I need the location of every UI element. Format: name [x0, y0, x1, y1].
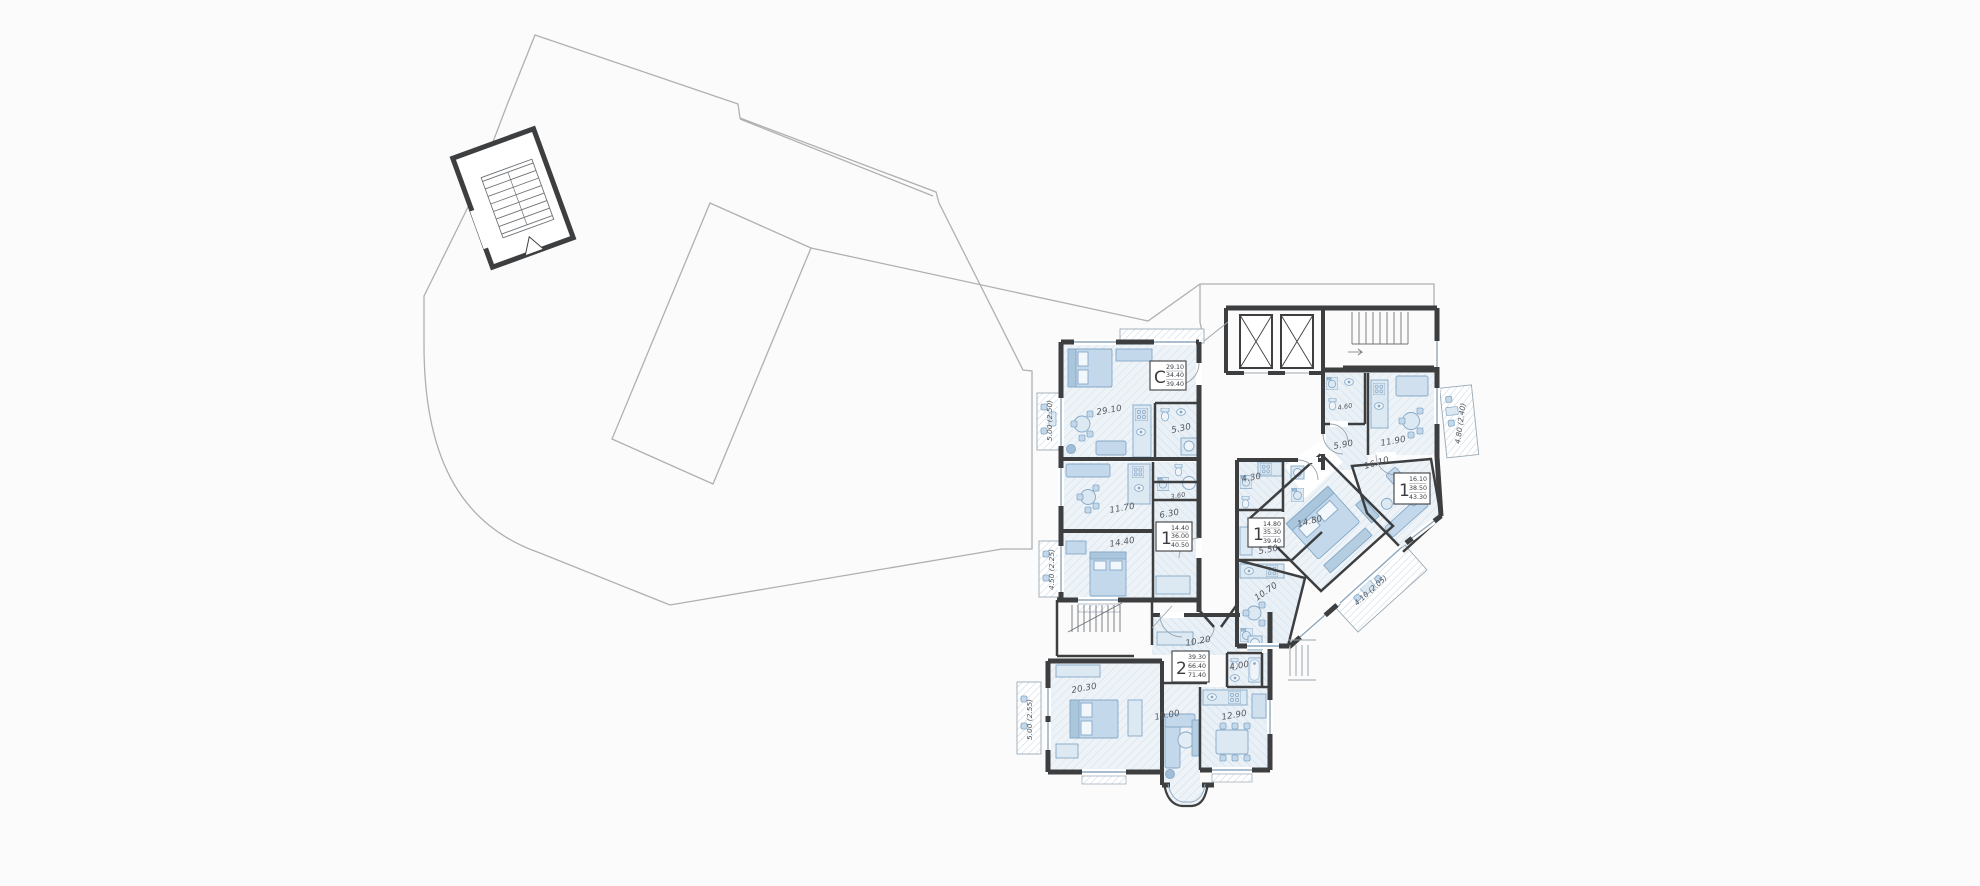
total-area: 43.30: [1409, 494, 1427, 501]
plant-icon: [1067, 445, 1076, 454]
living-area: 14.80: [1263, 521, 1281, 528]
window-sill: [1082, 776, 1126, 784]
living-area: 14.40: [1171, 525, 1189, 532]
floor-plan-page: { "plan": { "apartments": [ {"kind":"stu…: [0, 0, 1980, 886]
site-inner-edge: [740, 119, 933, 196]
wardrobe-icon: [1156, 576, 1190, 594]
wardrobe-icon: [1116, 349, 1152, 361]
apartment-type-letter: 2: [1176, 659, 1187, 679]
bed-double-icon: [1068, 349, 1112, 387]
plant-icon: [1166, 770, 1175, 779]
wardrobe-icon: [1056, 665, 1100, 677]
bed-double-icon: [1070, 700, 1118, 738]
kitchen-counter-icon: [1133, 405, 1151, 457]
floor-plan-svg: С 29.10 34.40 39.40 1 14.40 36.00 40.50 …: [0, 0, 1980, 886]
desk-icon: [1056, 744, 1078, 758]
living-area: 16.10: [1409, 476, 1427, 483]
core-stairs-icon: [1348, 312, 1408, 355]
dining-table-icon: [1216, 730, 1248, 754]
detached-stairwell: [451, 129, 573, 268]
dresser-icon: [1128, 700, 1142, 736]
spec-card-1room-c: 1 16.10 38.50 43.30: [1394, 473, 1430, 504]
balcony-label: 4.50 (2.25): [1047, 549, 1056, 590]
area: 36.00: [1171, 533, 1189, 540]
elevator-core: [1240, 315, 1313, 373]
kitchenette-row-icon: [1258, 462, 1282, 476]
spec-card-2room: 2 39.30 66.40 71.40: [1172, 651, 1209, 682]
window-sill: [1212, 774, 1252, 782]
total-area: 40.50: [1171, 542, 1189, 549]
spec-card-1room-b: 1 14.80 35.30 39.40: [1248, 518, 1284, 547]
balcony-label: 5.00 (2.55): [1025, 699, 1034, 740]
spec-card-studio: С 29.10 34.40 39.40: [1150, 361, 1186, 390]
site-boundary: [424, 35, 1032, 605]
apartment-type-letter: С: [1154, 368, 1166, 388]
tv-stand-icon: [1192, 720, 1199, 756]
spec-card-1room-a: 1 14.40 36.00 40.50: [1156, 522, 1192, 551]
kitchen-counter-icon: [1128, 464, 1150, 504]
living-area: 39.30: [1188, 654, 1206, 661]
bed-double-icon: [1090, 552, 1126, 596]
area: 66.40: [1188, 663, 1206, 670]
dresser-icon: [1066, 541, 1086, 554]
site-inner-rect: [612, 203, 811, 484]
stairwell-walls: [453, 129, 573, 267]
area: 34.40: [1166, 372, 1184, 379]
cabinet-icon: [1396, 376, 1428, 396]
total-area: 39.40: [1166, 381, 1184, 388]
area: 35.30: [1263, 529, 1281, 536]
total-area: 71.40: [1188, 672, 1206, 679]
sofa-icon: [1066, 464, 1110, 477]
sofa-icon: [1096, 441, 1126, 455]
living-area: 29.10: [1166, 364, 1184, 371]
fridge-icon: [1252, 694, 1266, 718]
balcony-label: 5.00 (2.50): [1045, 400, 1054, 441]
area: 38.50: [1409, 485, 1427, 492]
